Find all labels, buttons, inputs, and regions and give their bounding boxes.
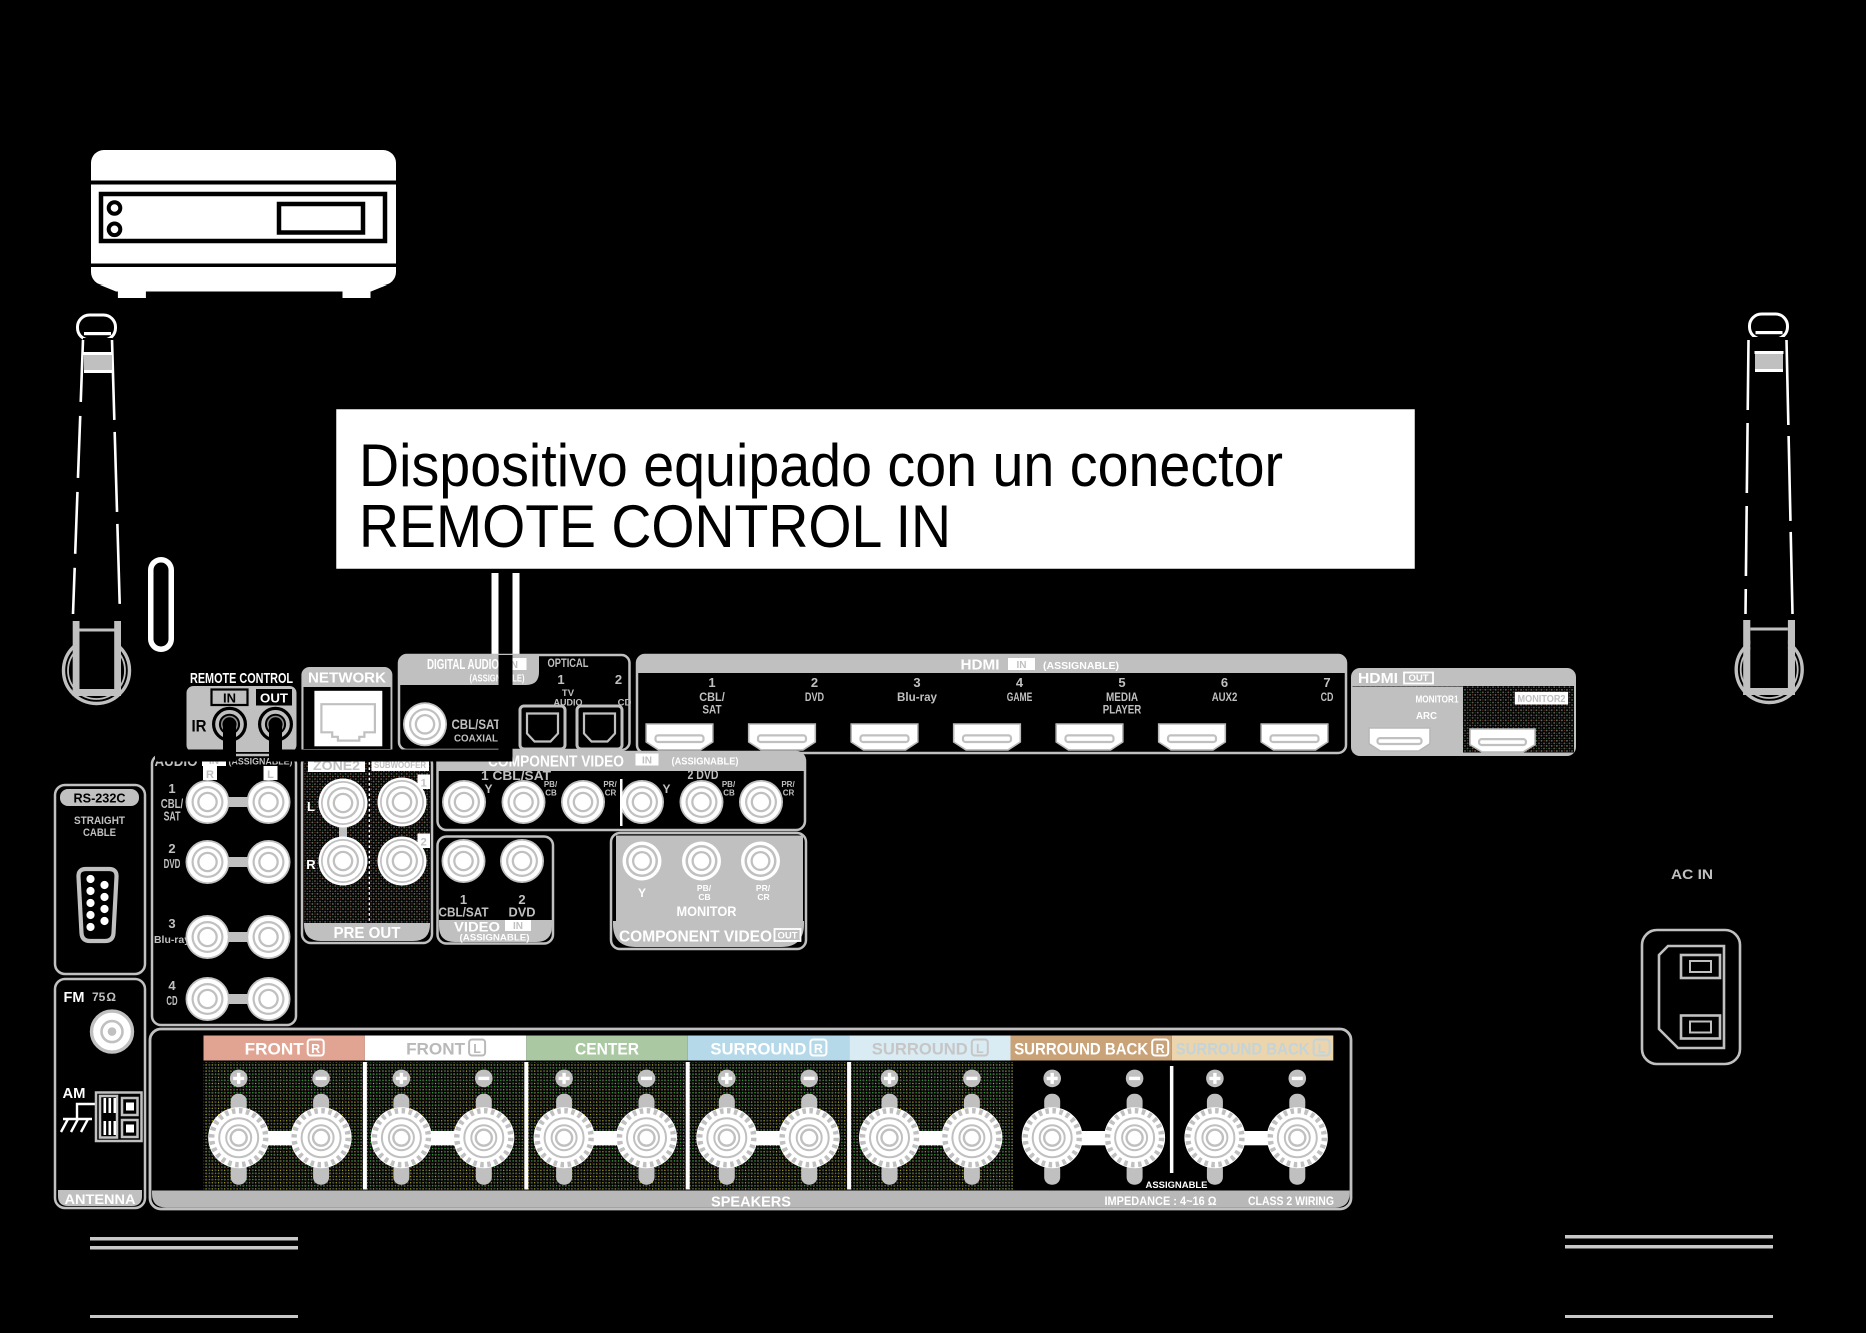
svg-text:OUT: OUT xyxy=(777,931,797,942)
svg-text:CD: CD xyxy=(1321,692,1334,704)
svg-text:IN: IN xyxy=(1017,660,1027,671)
svg-text:CABLE: CABLE xyxy=(83,827,116,839)
svg-text:IMPEDANCE : 4~16 Ω: IMPEDANCE : 4~16 Ω xyxy=(1105,1196,1217,1208)
svg-text:7: 7 xyxy=(1323,675,1330,690)
svg-text:4: 4 xyxy=(1016,675,1024,690)
svg-text:DVD: DVD xyxy=(805,692,824,704)
svg-text:Blu-ray: Blu-ray xyxy=(897,692,938,704)
svg-text:SPEAKERS: SPEAKERS xyxy=(711,1193,791,1210)
svg-text:1 CBL/SAT: 1 CBL/SAT xyxy=(481,768,551,783)
svg-text:Dispositivo equipado con un co: Dispositivo equipado con un conector xyxy=(359,432,1283,499)
svg-text:1: 1 xyxy=(168,781,175,796)
svg-text:REMOTE CONTROL: REMOTE CONTROL xyxy=(190,670,293,687)
svg-text:DIGITAL AUDIO: DIGITAL AUDIO xyxy=(427,657,499,673)
svg-text:R: R xyxy=(311,1042,320,1056)
svg-text:1: 1 xyxy=(557,672,564,687)
svg-text:SURROUND BACK: SURROUND BACK xyxy=(1014,1039,1149,1058)
svg-text:ASSIGNABLE: ASSIGNABLE xyxy=(1146,1180,1208,1190)
svg-text:AC IN: AC IN xyxy=(1671,867,1713,882)
svg-text:1: 1 xyxy=(708,675,715,690)
svg-text:SUBWOOFER: SUBWOOFER xyxy=(374,760,426,771)
svg-text:CR: CR xyxy=(757,892,769,902)
svg-text:FRONT: FRONT xyxy=(245,1039,305,1058)
svg-text:COAXIAL: COAXIAL xyxy=(454,734,498,745)
svg-text:MONITOR: MONITOR xyxy=(677,904,737,919)
svg-text:ANTENNA: ANTENNA xyxy=(65,1192,136,1207)
svg-text:SURROUND BACK: SURROUND BACK xyxy=(1176,1039,1311,1058)
svg-text:IN: IN xyxy=(513,921,523,932)
svg-text:NETWORK: NETWORK xyxy=(308,670,386,687)
svg-text:2: 2 xyxy=(615,672,622,687)
svg-text:Y: Y xyxy=(662,782,670,796)
svg-text:PRE OUT: PRE OUT xyxy=(334,925,402,942)
svg-text:OPTICAL: OPTICAL xyxy=(548,658,589,670)
svg-text:IR: IR xyxy=(192,717,207,736)
svg-text:5: 5 xyxy=(1118,675,1125,690)
svg-text:R: R xyxy=(306,857,316,872)
svg-text:2: 2 xyxy=(168,841,175,856)
svg-text:6: 6 xyxy=(1221,675,1228,690)
svg-text:GAME: GAME xyxy=(1007,692,1033,704)
svg-text:L: L xyxy=(976,1042,984,1056)
svg-text:AUX2: AUX2 xyxy=(1212,692,1238,704)
svg-text:SURROUND: SURROUND xyxy=(710,1039,806,1058)
svg-text:CD: CD xyxy=(166,994,177,1008)
svg-text:R: R xyxy=(206,769,214,781)
svg-text:R: R xyxy=(814,1042,823,1056)
svg-text:MONITOR2: MONITOR2 xyxy=(1518,693,1566,705)
svg-text:MEDIA: MEDIA xyxy=(1106,692,1138,704)
svg-text:(ASSIGNABLE): (ASSIGNABLE) xyxy=(1043,660,1119,672)
svg-text:L: L xyxy=(267,769,274,781)
svg-text:L: L xyxy=(307,799,315,814)
svg-text:HDMI: HDMI xyxy=(961,657,1000,674)
svg-text:L: L xyxy=(473,1042,481,1056)
svg-text:CB: CB xyxy=(545,789,557,798)
svg-text:REMOTE CONTROL IN: REMOTE CONTROL IN xyxy=(359,493,951,560)
svg-text:FRONT: FRONT xyxy=(406,1039,466,1058)
svg-text:IN: IN xyxy=(642,756,652,767)
svg-text:DVD: DVD xyxy=(164,857,181,871)
svg-text:CBL/: CBL/ xyxy=(699,692,725,704)
svg-text:Y: Y xyxy=(484,782,492,796)
svg-text:CLASS 2 WIRING: CLASS 2 WIRING xyxy=(1248,1196,1334,1208)
svg-text:OUT: OUT xyxy=(1408,673,1428,684)
svg-text:ARC: ARC xyxy=(1416,710,1437,722)
svg-text:75 Ω: 75 Ω xyxy=(92,990,116,1004)
svg-text:4: 4 xyxy=(168,978,176,993)
svg-text:OUT: OUT xyxy=(260,691,288,706)
svg-text:3: 3 xyxy=(913,675,920,690)
svg-text:CR: CR xyxy=(605,789,617,798)
svg-text:AM: AM xyxy=(63,1085,86,1102)
svg-text:2: 2 xyxy=(811,675,818,690)
svg-text:(ASSIGNABLE): (ASSIGNABLE) xyxy=(460,933,530,944)
svg-text:DVD: DVD xyxy=(509,906,536,920)
svg-text:STRAIGHT: STRAIGHT xyxy=(74,815,125,827)
svg-text:SURROUND: SURROUND xyxy=(872,1039,968,1058)
svg-text:L: L xyxy=(1318,1042,1326,1056)
svg-text:MONITOR1: MONITOR1 xyxy=(1416,694,1459,706)
svg-text:SAT: SAT xyxy=(164,810,181,824)
svg-text:(ASSIGNABLE): (ASSIGNABLE) xyxy=(470,674,525,685)
svg-text:IN: IN xyxy=(223,691,236,706)
svg-text:CR: CR xyxy=(783,789,795,798)
svg-text:2 DVD: 2 DVD xyxy=(688,767,719,782)
svg-text:FM: FM xyxy=(64,989,85,1006)
svg-text:RS-232C: RS-232C xyxy=(74,791,127,806)
svg-text:PLAYER: PLAYER xyxy=(1103,705,1142,717)
svg-text:COMPONENT VIDEO: COMPONENT VIDEO xyxy=(619,929,772,946)
svg-text:Y: Y xyxy=(638,886,646,900)
svg-text:CBL/SAT: CBL/SAT xyxy=(439,906,489,920)
svg-text:R: R xyxy=(1156,1042,1165,1056)
svg-text:Blu-ray: Blu-ray xyxy=(154,935,190,946)
svg-text:(ASSIGNABLE): (ASSIGNABLE) xyxy=(672,756,739,768)
svg-text:CBL/SAT: CBL/SAT xyxy=(452,717,502,732)
svg-text:CENTER: CENTER xyxy=(575,1039,639,1058)
svg-text:SAT: SAT xyxy=(702,705,721,717)
svg-text:3: 3 xyxy=(168,916,175,931)
svg-text:CB: CB xyxy=(698,892,710,902)
svg-text:CB: CB xyxy=(723,789,735,798)
svg-text:HDMI: HDMI xyxy=(1358,670,1398,687)
